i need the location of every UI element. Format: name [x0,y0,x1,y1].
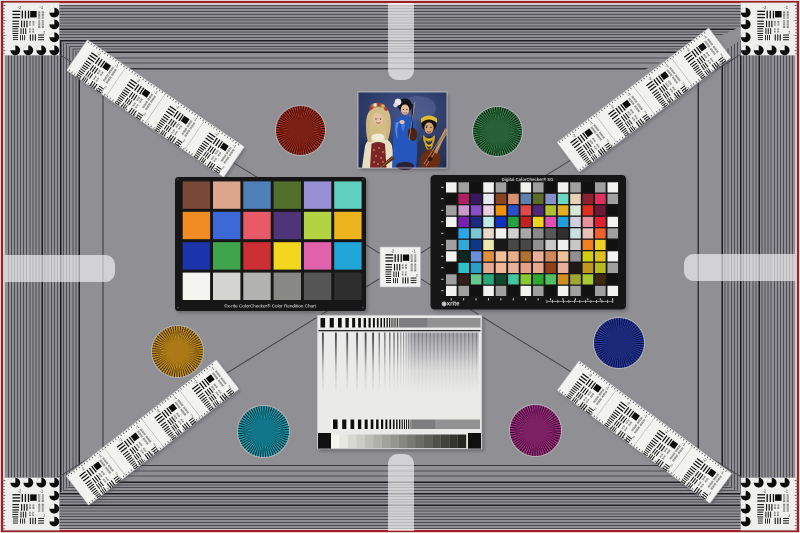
svg-text:+: + [362,178,364,182]
svg-text:2: 2 [788,514,790,518]
svg-text:2: 2 [416,274,418,278]
svg-text:2: 2 [788,31,790,35]
svg-text:+: + [177,178,179,182]
svg-text:2: 2 [43,31,45,35]
svg-text:©x-rite ColorChecker® Color Re: ©x-rite ColorChecker® Color Rendition Ch… [224,302,317,308]
svg-text:2: 2 [43,514,45,518]
svg-text:Digital ColorChecker® SG: Digital ColorChecker® SG [502,177,554,182]
svg-text:◉xrite: ◉xrite [442,302,461,308]
svg-text:+: + [362,306,364,310]
svg-text:+: + [177,306,179,310]
